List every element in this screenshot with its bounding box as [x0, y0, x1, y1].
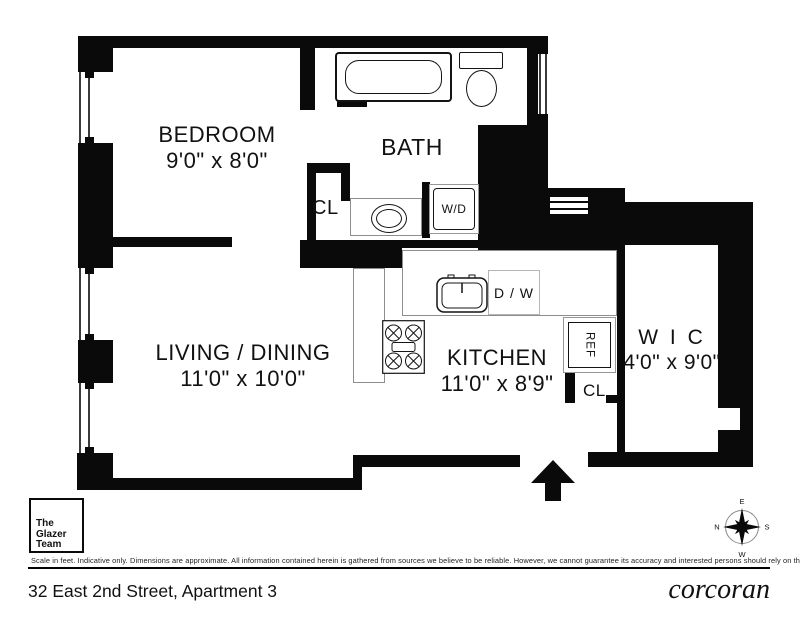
window-frame-line — [545, 54, 547, 114]
toilet-bowl — [466, 70, 497, 107]
kitchen-sink — [436, 274, 488, 313]
wic-wall-notch — [718, 408, 740, 430]
window-frame-line — [88, 72, 90, 143]
wall-kitchen-corner-block — [300, 240, 402, 268]
bedroom-name: BEDROOM — [117, 122, 317, 148]
wall-entry-closet-right-jamb — [606, 395, 620, 403]
window-frame-line — [79, 72, 81, 143]
bathtub-basin — [345, 60, 442, 94]
disclaimer-text: Scale in feet. Indicative only. Dimensio… — [31, 556, 776, 565]
wic-label-group: W I C 4'0" x 9'0" — [597, 326, 747, 376]
wall-left-b — [78, 340, 113, 383]
door-leaf-line — [550, 208, 588, 210]
wall-bedroom-living-divider — [112, 237, 232, 247]
footer-divider — [28, 567, 770, 569]
living-name: LIVING / DINING — [133, 340, 353, 366]
window-mullion — [85, 72, 94, 78]
bathtub — [335, 52, 452, 102]
window-frame-line — [539, 54, 541, 114]
kitchen-label-group: KITCHEN 11'0" x 8'9" — [397, 345, 597, 397]
wall-wic-top — [603, 202, 753, 245]
team-line-1: The — [36, 519, 67, 530]
bedroom-window — [78, 72, 113, 143]
entry-door-slot — [550, 197, 588, 214]
wall-bath-right-mass — [478, 125, 548, 250]
window-mullion — [85, 268, 94, 274]
compass-right-letter: S — [764, 523, 769, 532]
wall-wic-bottom — [588, 452, 753, 467]
kitchen-dims: 11'0" x 8'9" — [397, 371, 597, 397]
bath-sink — [371, 204, 407, 233]
entry-arrow — [531, 460, 575, 501]
bath-name: BATH — [362, 134, 462, 161]
wall-closet-right — [341, 163, 350, 201]
floor-plan-page: W/D D / W REF BEDROOM 9'0" x 8'0" — [0, 0, 800, 618]
living-dims: 11'0" x 10'0" — [133, 366, 353, 392]
wic-name: W I C — [597, 326, 747, 351]
wall-bottom-lower — [77, 478, 362, 490]
toilet-tank — [459, 52, 503, 69]
glazer-team-text: The Glazer Team — [36, 519, 67, 551]
dishwasher: D / W — [488, 270, 540, 315]
door-leaf-line — [550, 201, 588, 203]
compass-rose: E N S W — [712, 495, 772, 559]
window-frame-line — [79, 383, 81, 453]
wall-bedroom-right — [300, 48, 315, 110]
window-mullion — [85, 383, 94, 389]
bath-window — [538, 54, 548, 114]
bedroom-dims: 9'0" x 8'0" — [117, 148, 317, 174]
window-mullion — [85, 447, 94, 453]
window-frame-line — [79, 268, 81, 340]
washer-dryer: W/D — [429, 184, 479, 234]
washer-dryer-label: W/D — [442, 202, 467, 216]
wall-top-left-corner — [78, 36, 113, 72]
bath-closet-label: CL — [312, 197, 339, 220]
window-mullion — [85, 334, 94, 340]
window-frame-line — [88, 383, 90, 453]
window-frame-line — [88, 268, 90, 340]
living-label-group: LIVING / DINING 11'0" x 10'0" — [133, 340, 353, 392]
wall-top — [113, 36, 548, 48]
dishwasher-label: D / W — [494, 285, 534, 301]
bath-label-group: BATH — [362, 134, 462, 161]
window-mullion — [85, 137, 94, 143]
wall-bottom-upper — [353, 455, 520, 467]
compass-left-letter: N — [714, 523, 719, 532]
entry-closet-label: CL — [583, 381, 606, 401]
kitchen-name: KITCHEN — [397, 345, 597, 371]
corcoran-logo: corcoran — [668, 574, 770, 606]
team-line-3: Team — [36, 540, 67, 551]
wic-dims: 4'0" x 9'0" — [597, 351, 747, 376]
bath-sink-basin — [376, 209, 402, 228]
kitchen-counter-left — [353, 268, 385, 383]
bedroom-label-group: BEDROOM 9'0" x 8'0" — [117, 122, 317, 174]
compass-top-letter: E — [739, 497, 744, 506]
wall-left-a — [78, 143, 113, 268]
washer-dryer-door: W/D — [433, 188, 475, 230]
living-window-lower — [78, 383, 113, 453]
living-window-upper — [78, 268, 113, 340]
listing-address: 32 East 2nd Street, Apartment 3 — [28, 581, 277, 602]
glazer-team-logo: The Glazer Team — [29, 498, 84, 553]
